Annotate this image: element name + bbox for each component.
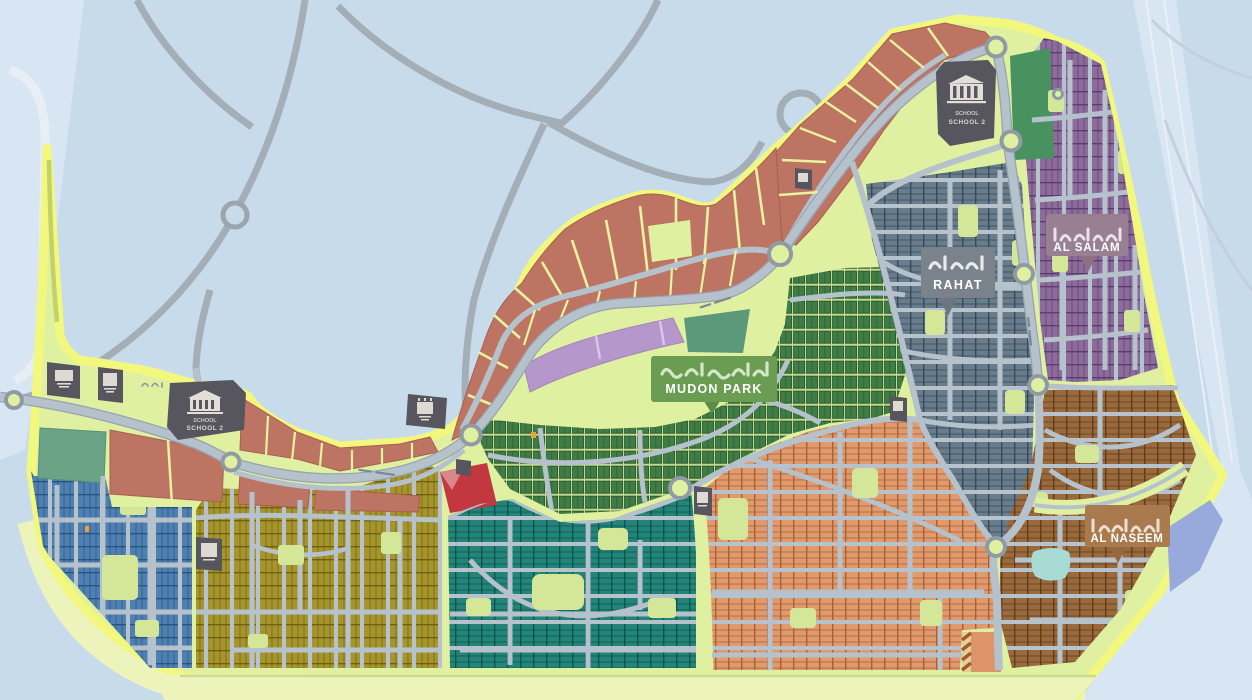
svg-text:SCHOOL: SCHOOL [955,111,979,117]
svg-text:MUDON PARK: MUDON PARK [665,382,762,396]
svg-text:AL SALAM: AL SALAM [1053,242,1120,254]
svg-text:AL NASEEM: AL NASEEM [1091,533,1164,545]
svg-text:SCHOOL 2: SCHOOL 2 [948,119,985,126]
svg-text:SCHOOL 2: SCHOOL 2 [186,425,223,432]
svg-text:SCHOOL: SCHOOL [193,418,217,424]
svg-text:RAHAT: RAHAT [933,278,983,292]
